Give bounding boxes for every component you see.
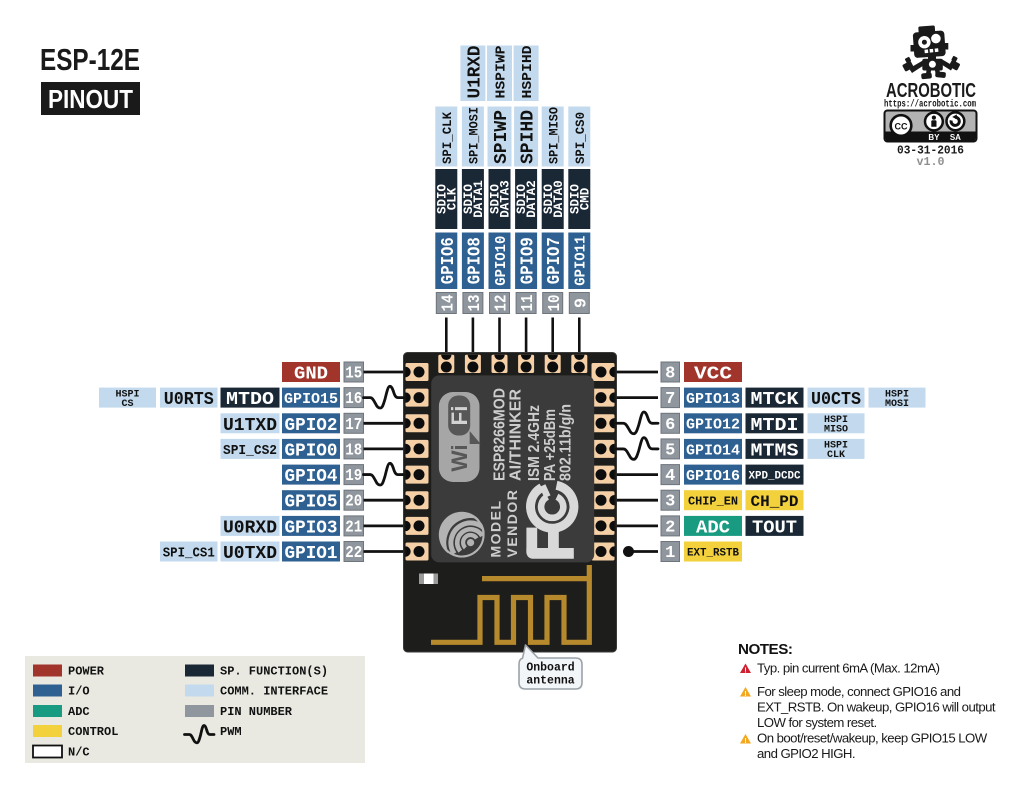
- svg-text:5: 5: [665, 441, 675, 460]
- svg-text:SPIWP: SPIWP: [492, 110, 512, 164]
- svg-text:PIN NUMBER: PIN NUMBER: [220, 705, 293, 719]
- svg-text:DATA2: DATA2: [525, 180, 539, 218]
- svg-text:MTDO: MTDO: [226, 390, 274, 410]
- svg-text:AI/THINKER: AI/THINKER: [508, 389, 525, 481]
- svg-text:22: 22: [345, 544, 362, 563]
- svg-text:9: 9: [572, 298, 591, 308]
- svg-text:VENDOR: VENDOR: [504, 489, 520, 558]
- svg-text:!: !: [744, 689, 747, 698]
- svg-text:POWER: POWER: [68, 665, 105, 679]
- svg-text:U0RXD: U0RXD: [223, 518, 277, 538]
- svg-text:DATA3: DATA3: [499, 180, 513, 218]
- svg-text:MTCK: MTCK: [751, 390, 799, 410]
- svg-text:MTMS: MTMS: [751, 441, 799, 461]
- svg-text:GPIO10: GPIO10: [493, 236, 510, 286]
- svg-text:!: !: [744, 736, 747, 745]
- svg-text:GPIO13: GPIO13: [686, 391, 740, 408]
- svg-text:DATA1: DATA1: [472, 180, 486, 218]
- svg-text:ADC: ADC: [696, 518, 730, 538]
- svg-text:SPI_CS1: SPI_CS1: [163, 546, 215, 561]
- svg-text:802.11b/g/n: 802.11b/g/n: [557, 404, 574, 481]
- svg-text:12: 12: [493, 295, 512, 312]
- svg-text:COMM. INTERFACE: COMM. INTERFACE: [220, 685, 328, 699]
- svg-text:20: 20: [345, 493, 362, 512]
- svg-text:For sleep mode, connect GPIO16: For sleep mode, connect GPIO16 and: [757, 684, 961, 699]
- svg-text:GPIO16: GPIO16: [686, 468, 740, 485]
- svg-text:18: 18: [345, 441, 362, 460]
- svg-text:LOW for system reset.: LOW for system reset.: [757, 715, 877, 730]
- svg-text:Wi: Wi: [447, 444, 472, 471]
- svg-text:MOSI: MOSI: [885, 399, 909, 410]
- svg-text:and GPIO2 HIGH.: and GPIO2 HIGH.: [757, 746, 855, 761]
- svg-text:4: 4: [665, 467, 675, 486]
- svg-text:GPIO9: GPIO9: [519, 237, 539, 284]
- svg-text:CS: CS: [121, 399, 133, 410]
- svg-text:SPI_MISO: SPI_MISO: [546, 107, 561, 164]
- svg-text:8: 8: [665, 365, 675, 384]
- svg-text:GPIO7: GPIO7: [545, 237, 565, 284]
- svg-text:ADC: ADC: [68, 705, 90, 719]
- svg-text:ISM 2.4GHz: ISM 2.4GHz: [526, 405, 543, 481]
- svg-text:ESP-12E: ESP-12E: [40, 43, 140, 77]
- svg-text:1: 1: [665, 544, 675, 563]
- svg-text:13: 13: [466, 295, 485, 312]
- svg-text:Typ. pin current 6mA (Max. 12m: Typ. pin current 6mA (Max. 12mA): [757, 661, 940, 676]
- svg-text:!: !: [744, 665, 747, 674]
- svg-text:VCC: VCC: [694, 364, 732, 384]
- svg-text:GPIO14: GPIO14: [686, 442, 740, 459]
- svg-text:SPI_CS2: SPI_CS2: [223, 444, 277, 459]
- svg-text:U1TXD: U1TXD: [223, 416, 277, 436]
- svg-text:6: 6: [665, 416, 675, 435]
- svg-text:CC: CC: [895, 121, 908, 132]
- svg-text:I/O: I/O: [68, 685, 90, 699]
- svg-text:v1.0: v1.0: [917, 155, 945, 169]
- svg-text:GPIO4: GPIO4: [285, 467, 338, 487]
- svg-text:GPIO5: GPIO5: [285, 493, 338, 513]
- svg-text:10: 10: [546, 295, 565, 312]
- svg-text:XPD_DCDC: XPD_DCDC: [749, 471, 801, 483]
- svg-text:17: 17: [345, 416, 362, 435]
- svg-text:7: 7: [665, 390, 675, 409]
- svg-text:CMD: CMD: [578, 187, 592, 210]
- svg-text:PA +25dBm: PA +25dBm: [542, 409, 559, 481]
- svg-text:15: 15: [345, 365, 362, 384]
- svg-text:CONTROL: CONTROL: [68, 725, 118, 739]
- svg-text:GPIO1: GPIO1: [285, 544, 338, 564]
- svg-text:16: 16: [345, 390, 362, 409]
- svg-text:CHIP_EN: CHIP_EN: [688, 495, 738, 509]
- svg-text:19: 19: [345, 467, 362, 486]
- svg-text:CLK: CLK: [445, 187, 459, 210]
- svg-text:SA: SA: [950, 133, 961, 142]
- svg-text:SP. FUNCTION(S): SP. FUNCTION(S): [220, 665, 328, 679]
- svg-text:https://acrobotic.com: https://acrobotic.com: [884, 99, 976, 111]
- svg-text:21: 21: [345, 518, 362, 537]
- svg-text:U0RTS: U0RTS: [164, 390, 214, 410]
- svg-text:antenna: antenna: [526, 675, 574, 688]
- svg-text:On boot/reset/wakeup, keep GPI: On boot/reset/wakeup, keep GPIO15 LOW: [757, 731, 988, 746]
- svg-text:HSPIHD: HSPIHD: [521, 46, 536, 99]
- svg-text:GPIO6: GPIO6: [439, 237, 459, 284]
- svg-text:U0TXD: U0TXD: [223, 544, 277, 564]
- svg-text:14: 14: [439, 295, 458, 312]
- svg-text:BY: BY: [928, 133, 940, 142]
- svg-text:SPIHD: SPIHD: [519, 110, 539, 164]
- svg-text:U1RXD: U1RXD: [465, 45, 485, 98]
- svg-text:GPIO2: GPIO2: [285, 416, 338, 436]
- svg-text:CLK: CLK: [827, 450, 845, 461]
- svg-text:U0CTS: U0CTS: [811, 390, 861, 410]
- svg-text:ESP8266MOD: ESP8266MOD: [492, 388, 509, 481]
- svg-text:Onboard: Onboard: [526, 662, 574, 675]
- svg-text:GPIO3: GPIO3: [285, 518, 338, 538]
- svg-text:MODEL: MODEL: [488, 499, 504, 557]
- svg-text:GPIO12: GPIO12: [686, 417, 740, 434]
- svg-text:MTDI: MTDI: [751, 416, 799, 436]
- svg-text:HSPIWP: HSPIWP: [494, 46, 509, 99]
- svg-text:EXT_RSTB: EXT_RSTB: [687, 547, 739, 559]
- svg-text:PINOUT: PINOUT: [48, 84, 133, 114]
- svg-text:SPI_CS0: SPI_CS0: [573, 112, 588, 164]
- svg-text:PWM: PWM: [220, 725, 242, 739]
- svg-text:2: 2: [665, 518, 675, 537]
- svg-text:MISO: MISO: [824, 425, 848, 436]
- svg-text:11: 11: [519, 295, 538, 312]
- svg-text:GND: GND: [294, 364, 328, 384]
- svg-text:3: 3: [665, 493, 675, 512]
- svg-text:NOTES:: NOTES:: [738, 641, 792, 658]
- svg-text:GPIO0: GPIO0: [285, 441, 338, 461]
- svg-text:DATA0: DATA0: [552, 180, 566, 218]
- svg-text:N/C: N/C: [68, 746, 90, 760]
- svg-text:CH_PD: CH_PD: [751, 493, 799, 511]
- svg-text:EXT_RSTB. On wakeup, GPIO16 wi: EXT_RSTB. On wakeup, GPIO16 will output: [757, 700, 996, 715]
- svg-text:TOUT: TOUT: [752, 518, 797, 538]
- svg-text:SPI_CLK: SPI_CLK: [440, 112, 455, 164]
- svg-text:GPIO8: GPIO8: [465, 237, 485, 284]
- svg-text:Fi: Fi: [447, 406, 472, 426]
- svg-text:GPIO11: GPIO11: [573, 236, 590, 286]
- svg-text:SPI_MOSI: SPI_MOSI: [467, 107, 482, 164]
- svg-text:GPIO15: GPIO15: [284, 391, 338, 408]
